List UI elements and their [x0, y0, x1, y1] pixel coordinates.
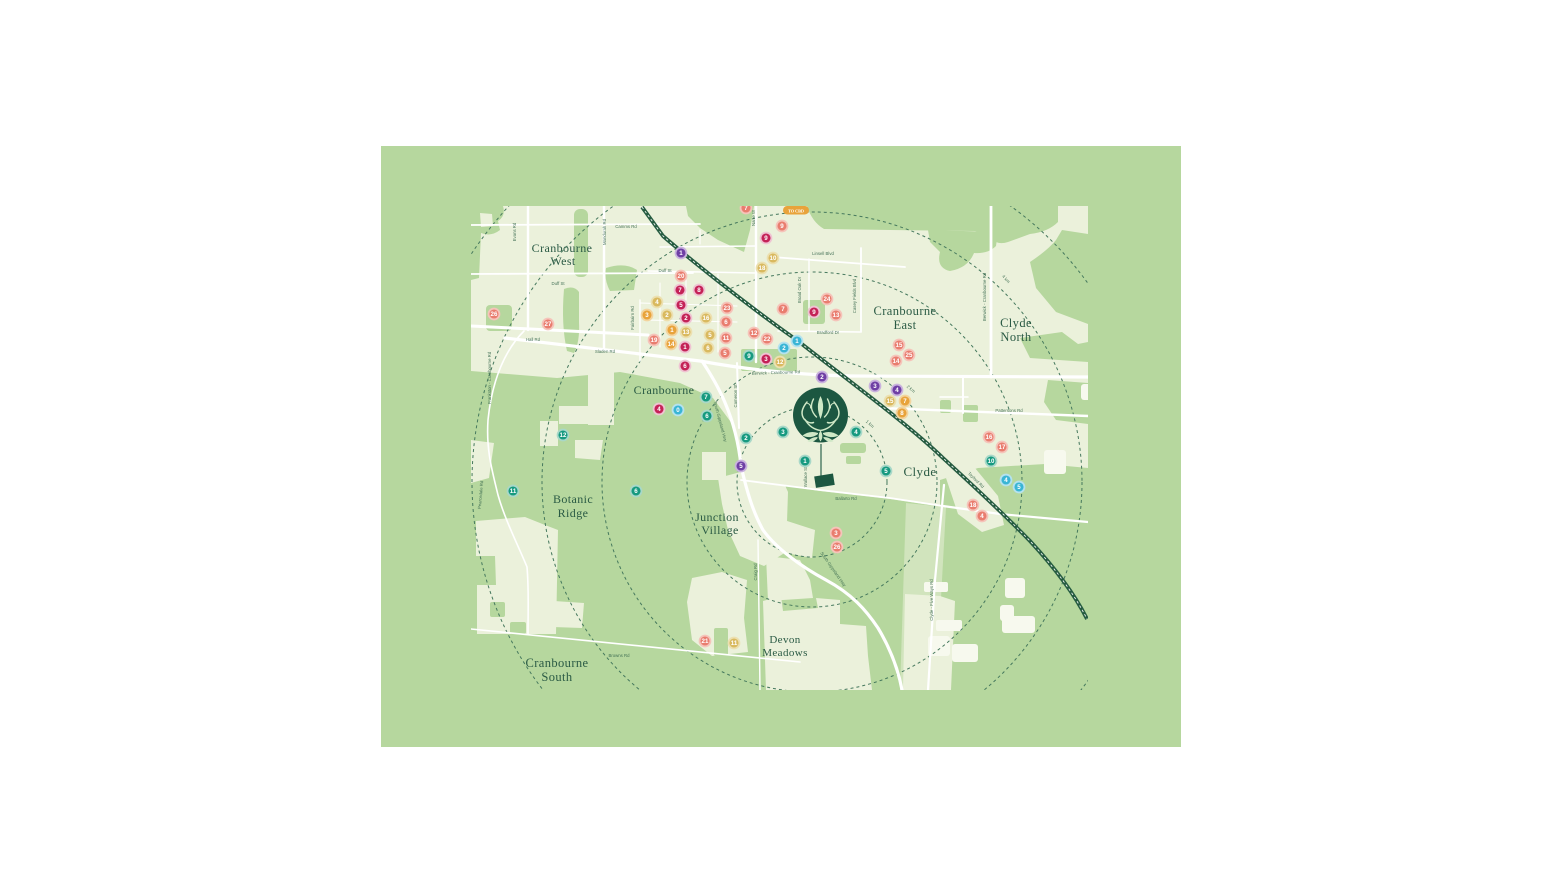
- svg-text:10: 10: [770, 255, 777, 262]
- svg-text:North: North: [1000, 330, 1032, 344]
- svg-text:6: 6: [705, 413, 709, 420]
- svg-text:Browns Rd: Browns Rd: [608, 653, 630, 658]
- svg-text:5: 5: [679, 302, 683, 309]
- svg-text:7: 7: [744, 206, 748, 212]
- svg-text:19: 19: [651, 337, 658, 344]
- svg-text:7: 7: [678, 287, 682, 294]
- svg-text:Hall Rd: Hall Rd: [526, 337, 541, 342]
- svg-text:Cranbourne: Cranbourne: [634, 383, 695, 397]
- svg-text:2: 2: [744, 435, 748, 442]
- svg-text:25: 25: [906, 352, 913, 359]
- svg-text:2: 2: [665, 312, 669, 319]
- svg-text:Botanic: Botanic: [553, 492, 593, 506]
- svg-text:16: 16: [703, 315, 710, 322]
- svg-text:4: 4: [655, 299, 659, 306]
- svg-text:1: 1: [683, 344, 687, 351]
- svg-text:Broad Oak Dr: Broad Oak Dr: [797, 276, 802, 303]
- svg-text:3: 3: [645, 312, 649, 319]
- svg-text:18: 18: [759, 265, 766, 272]
- svg-text:Evans Rd: Evans Rd: [512, 222, 517, 241]
- svg-text:Frankston - Cranbourne Rd: Frankston - Cranbourne Rd: [487, 351, 492, 404]
- svg-text:26: 26: [834, 544, 841, 551]
- svg-text:Mandurah Rd: Mandurah Rd: [602, 218, 607, 245]
- svg-text:22: 22: [764, 336, 771, 343]
- svg-text:5: 5: [739, 463, 743, 470]
- svg-text:12: 12: [751, 330, 758, 337]
- svg-text:Devon: Devon: [769, 634, 800, 646]
- svg-text:Cranbourne: Cranbourne: [532, 241, 593, 255]
- svg-text:1: 1: [795, 338, 799, 345]
- svg-text:11: 11: [723, 335, 730, 342]
- svg-text:Cameron St: Cameron St: [733, 384, 738, 408]
- svg-text:Linsell Blvd: Linsell Blvd: [812, 251, 834, 256]
- svg-text:23: 23: [724, 305, 731, 312]
- svg-text:Camms Rd: Camms Rd: [615, 224, 637, 229]
- svg-text:Junction: Junction: [695, 510, 739, 524]
- svg-text:3: 3: [834, 530, 838, 537]
- svg-text:East: East: [893, 318, 916, 332]
- svg-text:5: 5: [723, 350, 727, 357]
- svg-text:Clyde: Clyde: [903, 464, 936, 479]
- svg-text:Village: Village: [701, 523, 738, 537]
- svg-text:3: 3: [781, 429, 785, 436]
- svg-text:7: 7: [704, 394, 708, 401]
- svg-text:6: 6: [634, 488, 638, 495]
- svg-text:27: 27: [545, 321, 552, 328]
- svg-text:15: 15: [887, 398, 894, 405]
- svg-text:12: 12: [777, 359, 784, 366]
- svg-text:Cranbourne: Cranbourne: [525, 656, 588, 670]
- svg-text:6: 6: [683, 363, 687, 370]
- svg-text:4: 4: [980, 513, 984, 520]
- svg-text:9: 9: [747, 353, 751, 360]
- svg-text:0: 0: [676, 407, 680, 414]
- svg-text:11: 11: [510, 488, 517, 495]
- svg-text:5: 5: [708, 332, 712, 339]
- svg-text:4: 4: [1004, 477, 1008, 484]
- svg-text:12: 12: [560, 432, 567, 439]
- svg-text:2: 2: [684, 315, 688, 322]
- svg-text:Casey Fields Blvd: Casey Fields Blvd: [852, 278, 857, 313]
- svg-text:13: 13: [833, 312, 840, 319]
- svg-text:9: 9: [780, 223, 784, 230]
- svg-text:Cranbourne: Cranbourne: [873, 304, 936, 318]
- svg-text:26: 26: [491, 311, 498, 318]
- svg-text:13: 13: [683, 329, 690, 336]
- svg-text:2: 2: [820, 374, 824, 381]
- svg-text:5: 5: [884, 468, 888, 475]
- svg-text:14: 14: [893, 358, 900, 365]
- svg-text:South: South: [541, 670, 573, 684]
- svg-text:10: 10: [988, 458, 995, 465]
- svg-text:Berwick - Cranbourne Rd: Berwick - Cranbourne Rd: [982, 272, 987, 321]
- svg-text:16: 16: [986, 434, 993, 441]
- svg-text:21: 21: [702, 638, 709, 645]
- svg-text:Ridge: Ridge: [558, 506, 589, 520]
- svg-text:Pattersons Rd: Pattersons Rd: [995, 408, 1023, 413]
- svg-text:1: 1: [803, 458, 807, 465]
- svg-text:6: 6: [706, 345, 710, 352]
- svg-text:14: 14: [668, 341, 675, 348]
- svg-text:8: 8: [697, 287, 701, 294]
- svg-text:Fairbairn Rd: Fairbairn Rd: [630, 306, 635, 330]
- svg-text:11: 11: [731, 640, 738, 647]
- svg-text:Craig Rd: Craig Rd: [753, 563, 758, 581]
- svg-text:17: 17: [999, 444, 1006, 451]
- svg-text:Duff St: Duff St: [658, 268, 672, 273]
- svg-text:20: 20: [678, 273, 685, 280]
- svg-text:9: 9: [812, 309, 816, 316]
- svg-text:Clyde: Clyde: [1000, 316, 1032, 330]
- svg-text:Narre W: Narre W: [751, 209, 756, 226]
- svg-text:TO CBD: TO CBD: [788, 208, 804, 213]
- svg-text:5: 5: [1017, 484, 1021, 491]
- svg-text:Bradford Dr: Bradford Dr: [817, 330, 840, 335]
- svg-text:Duff St: Duff St: [551, 281, 565, 286]
- svg-text:4: 4: [895, 387, 899, 394]
- svg-text:7: 7: [781, 306, 785, 313]
- svg-text:24: 24: [824, 296, 831, 303]
- svg-text:1: 1: [670, 327, 674, 334]
- svg-text:18: 18: [970, 502, 977, 509]
- svg-text:Wallace St: Wallace St: [803, 466, 808, 487]
- svg-text:3: 3: [764, 356, 768, 363]
- svg-text:1: 1: [679, 250, 683, 257]
- svg-text:9: 9: [764, 235, 768, 242]
- svg-text:7: 7: [903, 398, 907, 405]
- svg-text:Ballarto Rd: Ballarto Rd: [835, 496, 857, 501]
- svg-text:6: 6: [724, 319, 728, 326]
- svg-text:15: 15: [896, 342, 903, 349]
- svg-text:Meadows: Meadows: [762, 647, 808, 659]
- svg-text:Sladen Rd: Sladen Rd: [595, 349, 616, 354]
- svg-text:Clyde - Five Ways Rd: Clyde - Five Ways Rd: [929, 579, 934, 621]
- svg-text:4: 4: [854, 429, 858, 436]
- svg-text:West: West: [550, 254, 576, 268]
- svg-text:3: 3: [873, 383, 877, 390]
- svg-text:2: 2: [782, 345, 786, 352]
- svg-text:4: 4: [657, 406, 661, 413]
- svg-text:8: 8: [900, 410, 904, 417]
